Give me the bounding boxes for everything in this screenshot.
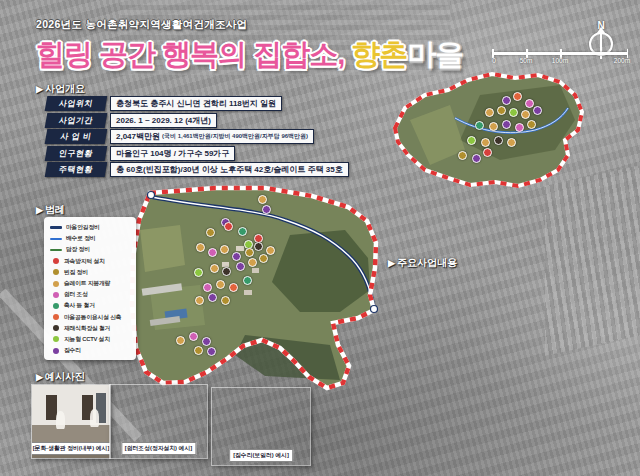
map-marker-emptyhouse (221, 296, 230, 305)
legend-item: 축사 등 철거 (50, 300, 132, 311)
drain-line-swatch (50, 238, 62, 241)
speedbump-dot-swatch (53, 258, 59, 264)
emptyhouse-dot-swatch (53, 269, 59, 275)
legend-item: 재래식화장실 철거 (50, 323, 132, 334)
overview-row-housing: 주택현황 총 60호(빈집포함)/30년 이상 노후주택 42호/슬레이트 주택… (46, 162, 349, 177)
scalebar-label: 0 (492, 57, 496, 64)
overview-label: 사업기간 (45, 113, 108, 128)
map-marker-slate (216, 280, 225, 289)
overview-label: 사 업 비 (45, 129, 108, 144)
map-marker-slate (248, 258, 257, 267)
map-marker-repair (533, 106, 542, 115)
cctv-dot-swatch (53, 336, 59, 342)
map-marker-emptyhouse (497, 106, 506, 115)
map-marker-toilet (254, 242, 263, 251)
map-marker-cctv (194, 268, 203, 277)
page-title: 힐링 공간 행복의 집합소, 향촌마을 (36, 35, 463, 75)
slate-dot-swatch (53, 281, 59, 287)
map-marker-toilet (494, 136, 503, 145)
map-marker-repair (232, 252, 241, 261)
map-marker-slate (210, 264, 219, 273)
overview-value: 총 60호(빈집포함)/30년 이상 노후주택 42호/슬레이트 주택 35호 (110, 162, 349, 177)
map-marker-slate (196, 243, 205, 252)
legend-item: 집수리 (50, 345, 132, 356)
map-marker-emptyhouse (259, 254, 268, 263)
map-marker-emptyhouse (458, 151, 467, 160)
map-marker-repair (502, 96, 511, 105)
map-marker-slate (507, 138, 516, 147)
overview-row-population: 인구현황 마을인구 104명 / 가구수 59가구 (46, 146, 235, 161)
map-scalebar: 0 50m 100m 200m (492, 52, 628, 66)
overview-row-location: 사업위치 충청북도 충주시 신니면 견학리 118번지 일원 (46, 96, 282, 111)
map-marker-slate (220, 245, 229, 254)
map-marker-speedbump (483, 148, 492, 157)
scalebar-label: 100m (552, 57, 568, 64)
photos-section-header: 예시사진 (36, 370, 85, 384)
scalebar-line (492, 52, 628, 55)
scalebar-label: 200m (614, 57, 630, 64)
title-village-suffix: 마을 (407, 38, 463, 70)
legend-item: 과속방지턱 설치 (50, 256, 132, 267)
person-silhouette (56, 411, 65, 429)
scalebar-labels: 0 50m 100m 200m (492, 57, 628, 66)
map-marker-barn (475, 121, 484, 130)
facility-dot-swatch (53, 314, 59, 320)
map-marker-toilet (222, 267, 231, 276)
map-marker-barn (238, 227, 247, 236)
map-marker-shelter (208, 248, 217, 257)
overview-value: 2,047백만원(국비 1,461백만원/지방비 490백만원/자부담 96백만… (110, 129, 314, 144)
map-marker-slate (485, 108, 494, 117)
person-silhouette (90, 409, 99, 427)
legend-item: 지능형 CCTV 설치 (50, 334, 132, 345)
map-marker-shelter (203, 283, 212, 292)
map-marker-repair (262, 205, 271, 214)
overview-label: 인구현황 (45, 146, 108, 161)
map-marker-repair (208, 293, 217, 302)
legend-item: 마을공동이용시설 신축 (50, 312, 132, 323)
map-marker-cctv (509, 108, 518, 117)
map-marker-repair (202, 337, 211, 346)
toilet-dot-swatch (53, 325, 59, 331)
compass: N (588, 20, 614, 56)
photo-caption: [문화·생활관 정비(내부) 예시] (32, 442, 110, 455)
map-marker-slate (481, 138, 490, 147)
map-marker-facility (513, 92, 522, 101)
map-marker-slate (176, 336, 185, 345)
overview-value: 2026. 1 ~ 2029. 12 (4개년) (110, 113, 217, 128)
title-main-part: 힐링 공간 행복의 집합소, (36, 38, 344, 70)
barn-dot-swatch (53, 303, 59, 309)
legend-item: 마을안길정비 (50, 222, 132, 233)
legend-item: 슬레이트 지붕개량 (50, 278, 132, 289)
map-marker-shelter (525, 99, 534, 108)
map-marker-emptyhouse (245, 248, 254, 257)
legend-item: 담장 정비 (50, 244, 132, 255)
road-line-swatch (50, 226, 62, 229)
overview-value: 충청북도 충주시 신니면 견학리 118번지 일원 (110, 96, 282, 111)
map-marker-barn (243, 276, 252, 285)
overview-section-header: 사업개요 (36, 82, 85, 96)
map-marker-repair (207, 347, 216, 356)
photo-community-hall: [문화·생활관 정비(내부) 예시] (32, 385, 110, 458)
photo-caption: [집수리(보일러) 예시] (229, 449, 293, 462)
title-block: 2026년도 농어촌취약지역생활여건개조사업 힐링 공간 행복의 집합소, 향촌… (36, 18, 463, 75)
repair-dot-swatch (53, 348, 59, 354)
overview-label: 주택현황 (45, 162, 108, 177)
legend-item: 빈집 정비 (50, 267, 132, 278)
overview-row-period: 사업기간 2026. 1 ~ 2029. 12 (4개년) (46, 113, 217, 128)
legend-item: 쉼터 조성 (50, 289, 132, 300)
projects-section-header: 주요사업내용 (388, 256, 457, 270)
map-marker-repair (502, 120, 511, 129)
scalebar-label: 50m (520, 57, 533, 64)
map-marker-repair (236, 262, 245, 271)
map-marker-slate (266, 246, 275, 255)
photo-pavilion: [쉼터조성(정자설치) 예시] (110, 385, 207, 458)
overview-label: 사업위치 (45, 96, 108, 111)
village-plan-poster: 2026년도 농어촌취약지역생활여건개조사업 힐링 공간 행복의 집합소, 향촌… (0, 0, 640, 476)
overview-value: 마을인구 104명 / 가구수 59가구 (110, 146, 235, 161)
map-marker-cctv (467, 136, 476, 145)
map-marker-shelter (515, 123, 524, 132)
map-marker-slate (521, 110, 530, 119)
legend-box: 마을안길정비 배수로 정비 담장 정비 과속방지턱 설치 빈집 정비 슬레이트 … (44, 217, 136, 360)
map-marker-emptyhouse (206, 228, 215, 237)
map-marker-shelter (189, 332, 198, 341)
photo-caption: [쉼터조성(정자설치) 예시] (121, 442, 196, 455)
overview-row-budget: 사 업 비 2,047백만원(국비 1,461백만원/지방비 490백만원/자부… (46, 129, 314, 144)
map-marker-slate (489, 122, 498, 131)
map-marker-slate (195, 296, 204, 305)
map-marker-repair (472, 154, 481, 163)
map-marker-slate (258, 195, 267, 204)
map-marker-emptyhouse (527, 120, 536, 129)
shelter-dot-swatch (53, 292, 59, 298)
legend-section-header: 범례 (36, 203, 65, 217)
map-marker-emptyhouse (194, 346, 203, 355)
title-village-name: 향촌 (351, 38, 407, 70)
fence-line-swatch (50, 249, 62, 252)
map-marker-speedbump (224, 222, 233, 231)
photo-boiler: [집수리(보일러) 예시] (212, 388, 310, 465)
legend-item: 배수로 정비 (50, 233, 132, 244)
program-subtitle: 2026년도 농어촌취약지역생활여건개조사업 (36, 18, 463, 32)
map-marker-facility (229, 283, 238, 292)
